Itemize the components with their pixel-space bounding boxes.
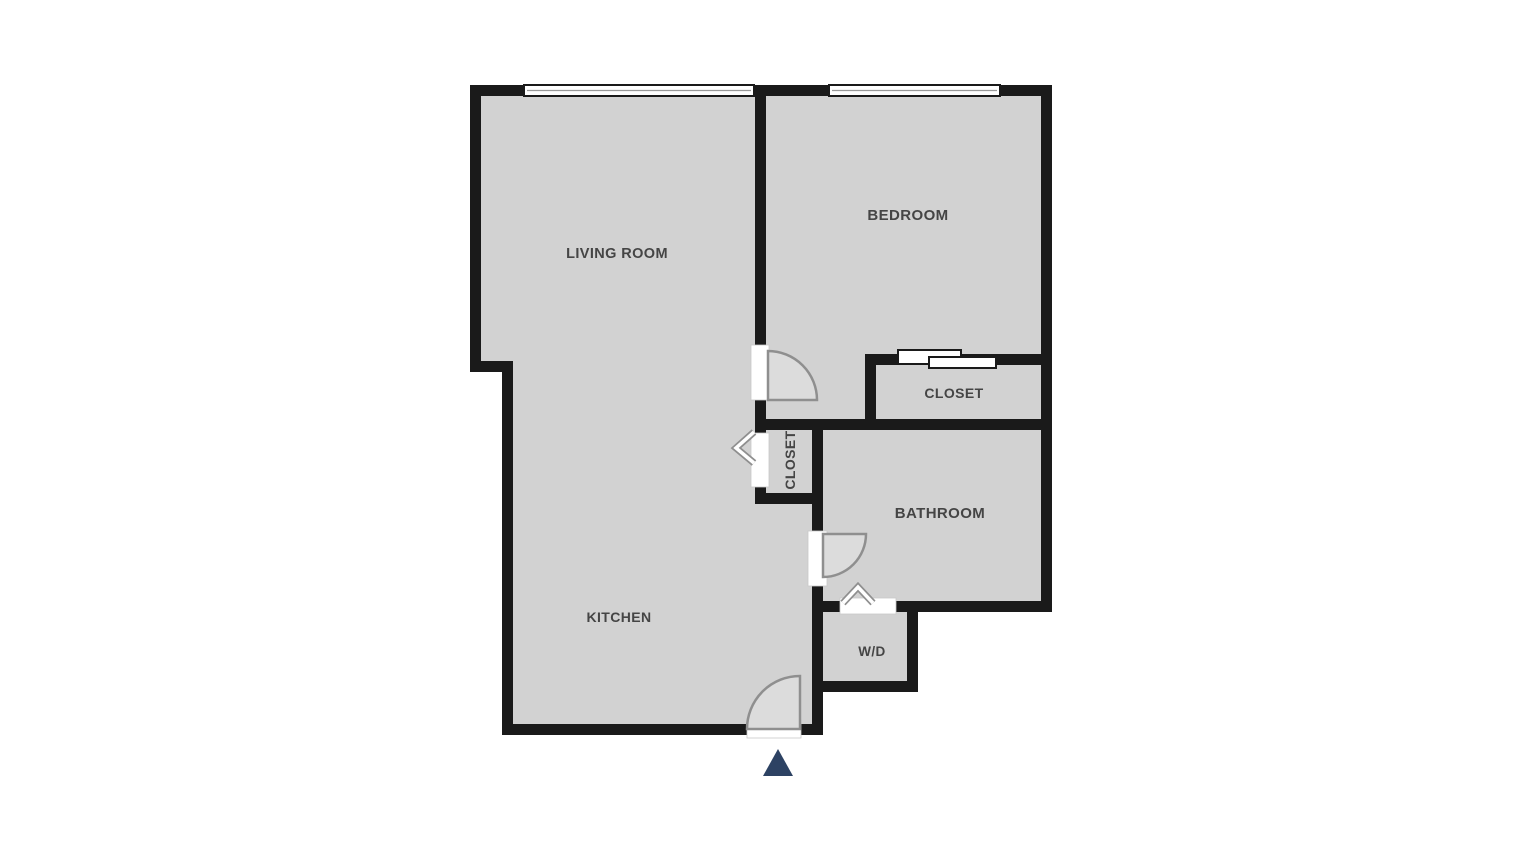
wall-wd-bottom xyxy=(812,681,918,692)
wall-right xyxy=(1041,85,1052,612)
floor-plan-page: LIVING ROOM BEDROOM CLOSET CLOSET BATHRO… xyxy=(0,0,1520,855)
living-room-label: LIVING ROOM xyxy=(566,246,668,262)
wall-bathroom-bottom xyxy=(907,601,1052,612)
wall-kitchen-left xyxy=(502,361,513,735)
kitchen-label: KITCHEN xyxy=(586,609,651,625)
hall-closet-label: CLOSET xyxy=(782,430,798,489)
wall-wd-right xyxy=(907,601,918,692)
wall-bathroom-left-upper xyxy=(812,419,823,533)
wall-bathroom-left-lower xyxy=(812,585,823,681)
wall-living-left xyxy=(470,85,481,372)
wd-label: W/D xyxy=(858,644,885,659)
entry-marker-triangle xyxy=(763,749,793,776)
sliding-door-panel-2 xyxy=(929,357,996,368)
wall-divider-upper xyxy=(755,85,766,345)
floor-plan-svg: LIVING ROOM BEDROOM CLOSET CLOSET BATHRO… xyxy=(0,0,1520,855)
wall-bedroom-closet-left xyxy=(865,354,876,430)
bathroom-label: BATHROOM xyxy=(895,505,985,522)
opening-bedroom-door xyxy=(751,345,769,400)
wall-horizontal-mid xyxy=(755,419,1041,430)
bedroom-label: BEDROOM xyxy=(867,207,948,224)
bedroom-closet-label: CLOSET xyxy=(924,385,983,401)
